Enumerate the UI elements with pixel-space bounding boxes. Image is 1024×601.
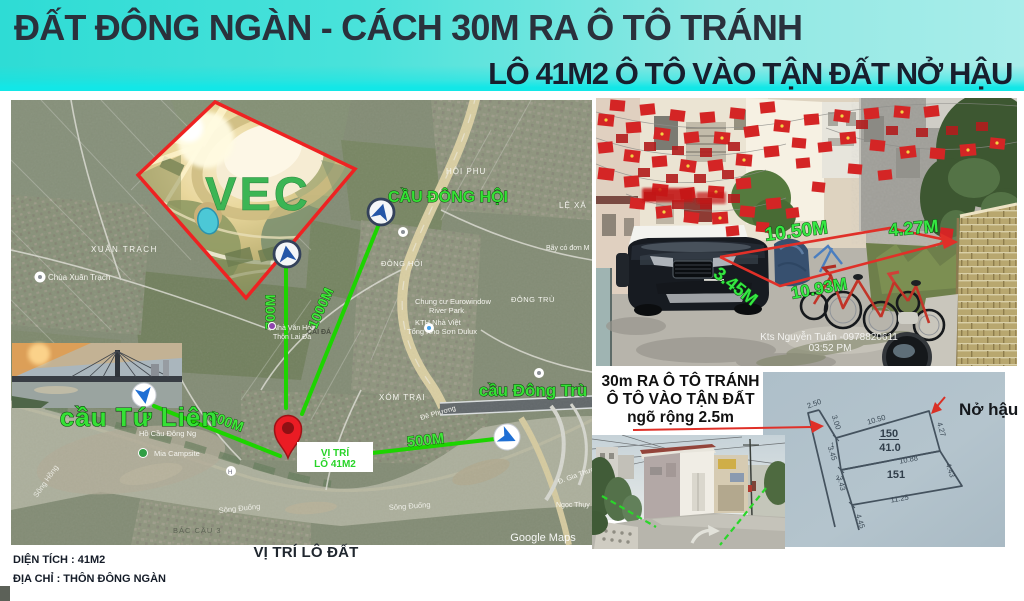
svg-text:ĐÔNG TRÙ: ĐÔNG TRÙ	[511, 295, 555, 304]
svg-text:VEC: VEC	[205, 167, 311, 220]
svg-text:ĐÔNG HỘI: ĐÔNG HỘI	[381, 259, 423, 268]
svg-text:River Park: River Park	[429, 306, 464, 315]
svg-text:HỘI PHU: HỘI PHU	[446, 167, 486, 176]
svg-text:LỆ XÁ: LỆ XÁ	[559, 201, 587, 210]
svg-text:Google Maps: Google Maps	[510, 532, 576, 544]
svg-text:Chùa Xuân Trạch: Chùa Xuân Trạch	[48, 273, 110, 282]
svg-text:CẦU ĐÔNG HỘI: CẦU ĐÔNG HỘI	[388, 187, 508, 206]
svg-text:Chung cư Eurowindow: Chung cư Eurowindow	[415, 297, 491, 306]
svg-text:cầu Đông Trù: cầu Đông Trù	[479, 381, 588, 400]
svg-text:Tổng Kho Sơn Dulux: Tổng Kho Sơn Dulux	[407, 327, 477, 336]
svg-text:BẮC CẦU 3: BẮC CẦU 3	[173, 525, 222, 535]
svg-text:XUÂN TRẠCH: XUÂN TRẠCH	[91, 245, 158, 254]
svg-text:XÓM TRẠI: XÓM TRẠI	[379, 393, 426, 402]
svg-text:Thôn Lai Đà: Thôn Lai Đà	[273, 334, 311, 341]
svg-text:41.0: 41.0	[879, 442, 900, 454]
svg-text:CÁI ĐÁ: CÁI ĐÁ	[307, 327, 331, 336]
svg-text:LÔ 41M2: LÔ 41M2	[314, 457, 356, 470]
svg-text:Hồ Cầu Đông Ng: Hồ Cầu Đông Ng	[139, 429, 196, 438]
svg-text:Nở hậu: Nở hậu	[959, 400, 1018, 419]
svg-text:VỊ TRÍ: VỊ TRÍ	[321, 446, 350, 459]
svg-text:Bãy có đơn M: Bãy có đơn M	[546, 245, 590, 252]
svg-text:H: H	[228, 470, 232, 476]
svg-text:Mia Campsite: Mia Campsite	[154, 449, 200, 458]
svg-text:KTH Nhà Việt: KTH Nhà Việt	[415, 318, 462, 327]
svg-text:151: 151	[887, 469, 905, 481]
svg-text:150: 150	[880, 428, 898, 440]
svg-text:cầu Tứ Liên: cầu Tứ Liên	[60, 402, 218, 432]
svg-text:Kts Nguyễn Tuấn -0978820611: Kts Nguyễn Tuấn -0978820611	[760, 330, 898, 343]
svg-text:Ngọc Thụy: Ngọc Thụy	[556, 502, 590, 509]
svg-text:03:52 PM: 03:52 PM	[809, 343, 852, 354]
